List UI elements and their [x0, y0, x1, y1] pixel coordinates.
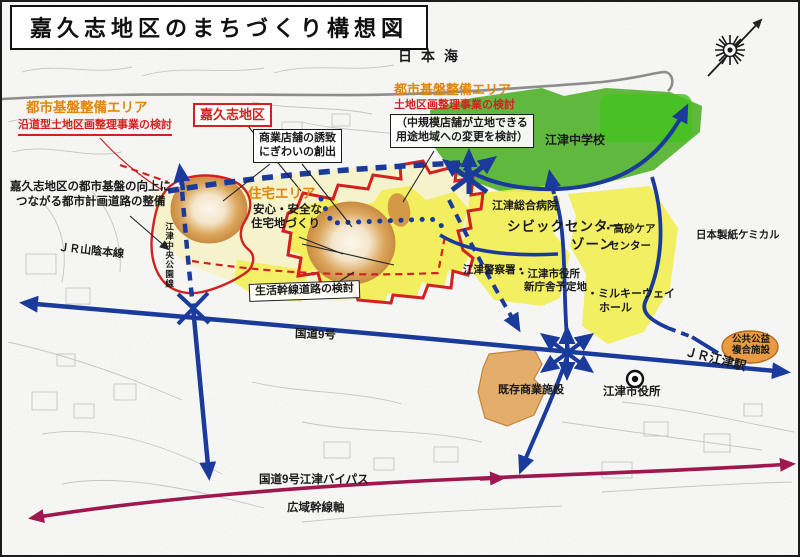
label-sea: 日本海 [398, 48, 467, 66]
label-housing-title: 住宅エリア [248, 186, 316, 203]
label-bypass: 国道9号江津バイパス [259, 473, 369, 487]
label-area-right-title: 都市基盤整備エリア [394, 82, 511, 98]
label-commercial: 商業店舗の誘致 にぎわいの創出 [253, 129, 342, 163]
label-new-cityhall-line1: ・江津市役所 [517, 268, 580, 281]
label-housing-line1: 安心・安全な [253, 203, 322, 217]
west-road-up-arrow [180, 168, 183, 190]
label-district: 嘉久志地区 [193, 103, 272, 127]
label-commercial-line2: にぎわいの創出 [259, 146, 336, 160]
label-route9: 国道9号 [295, 327, 336, 343]
label-planned-road: 江津中央公園線 [164, 222, 175, 289]
label-takasago-line1: ・高砂ケア [603, 223, 656, 236]
label-improve-line1: 嘉久志地区の都市基盤の向上に [10, 180, 171, 194]
label-takasago-line2: センター [609, 240, 651, 253]
label-cityhall: 江津市役所 [603, 385, 661, 399]
label-midstore-line1: （中規模店舗が立地できる [396, 117, 528, 131]
label-improve-line2: つながる都市計画道路の整備 [16, 195, 166, 209]
label-milkyway-line2: ホール [599, 302, 632, 316]
label-housing-line2: 住宅地づくり [251, 217, 320, 231]
label-new-cityhall-line2: 新庁舎予定地 [524, 281, 587, 294]
bypass-mid-arrow [480, 478, 502, 479]
label-milkyway-line1: ・ミルキーウェイ [587, 288, 675, 302]
label-area-left-title: 都市基盤整備エリア [26, 100, 148, 117]
label-midstore: （中規模店舗が立地できる 用途地域への変更を検討） [390, 114, 534, 148]
label-paper-chemical: 日本製紙ケミカル [696, 229, 780, 242]
label-area-left-sub: 沿道型土地区画整理事業の検討 [18, 119, 172, 136]
label-civic-main2: ゾーン [571, 237, 614, 254]
label-school: 江津中学校 [545, 133, 605, 148]
green-school-bright [600, 94, 692, 142]
label-wide-axis: 広域幹線軸 [287, 501, 345, 515]
label-existing-commercial: 既存商業施設 [498, 384, 564, 398]
page-title: 嘉久志地区のまちづくり構想図 [10, 5, 428, 50]
label-public-facility: 公共公益 複合施設 [722, 334, 780, 357]
label-midstore-line2: 用途地域への変更を検討） [396, 131, 528, 145]
label-public-facility-line1: 公共公益 [722, 334, 780, 345]
label-commercial-line1: 商業店舗の誘致 [259, 132, 336, 146]
concept-map: 嘉久志地区のまちづくり構想図 日本海 都市基盤整備エリア 沿道型土地区画整理事業… [0, 0, 800, 557]
label-hospital: 江津総合病院 [492, 200, 558, 214]
